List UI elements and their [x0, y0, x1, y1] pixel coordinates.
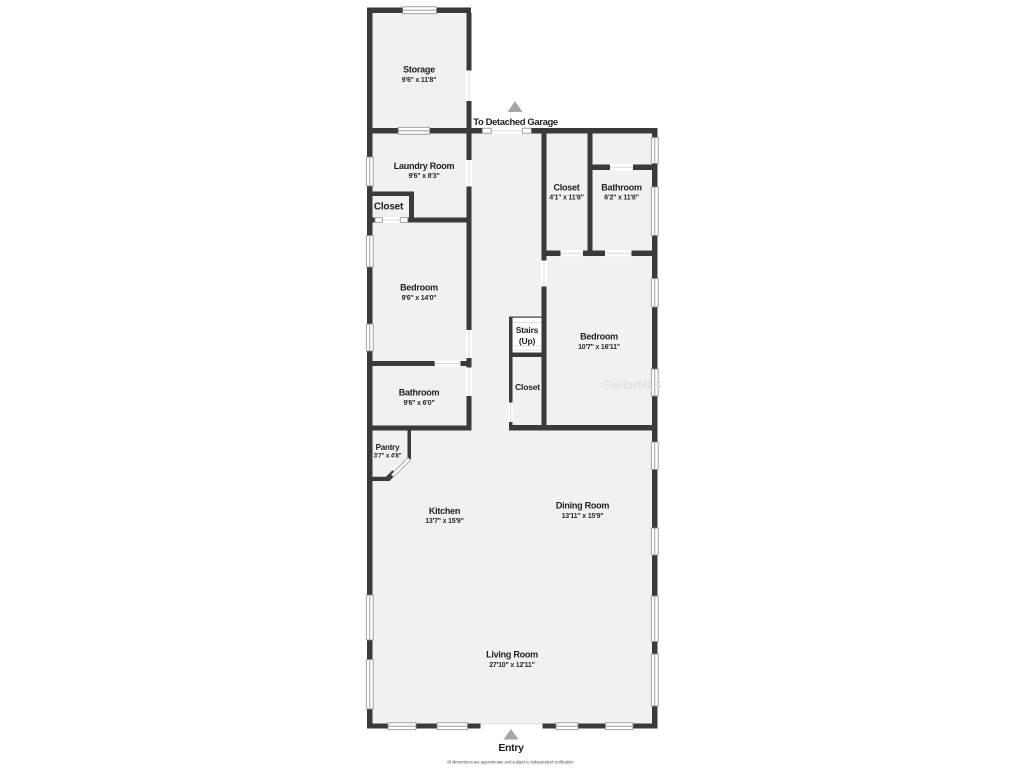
svg-text:Dining Room: Dining Room [556, 501, 609, 511]
svg-text:27'10" x 12'11": 27'10" x 12'11" [489, 662, 535, 669]
svg-text:To Detached Garage: To Detached Garage [473, 117, 558, 128]
svg-text:9'6" x 11'8": 9'6" x 11'8" [402, 77, 436, 84]
svg-text:Living Room: Living Room [486, 650, 538, 660]
svg-text:Laundry Room: Laundry Room [394, 161, 455, 171]
svg-text:Bedroom: Bedroom [580, 332, 618, 342]
svg-text:StellarMLS: StellarMLS [602, 380, 662, 392]
svg-text:13'7" x 15'9": 13'7" x 15'9" [425, 518, 464, 525]
svg-text:Closet: Closet [374, 202, 404, 213]
svg-text:Bedroom: Bedroom [400, 283, 438, 293]
svg-text:10'7" x 16'11": 10'7" x 16'11" [578, 344, 620, 351]
svg-text:Entry: Entry [498, 742, 524, 754]
svg-text:Closet: Closet [553, 183, 579, 193]
svg-text:Bathroom: Bathroom [399, 388, 440, 398]
svg-text:3'7" x 4'8": 3'7" x 4'8" [374, 453, 402, 460]
svg-text:Stairs: Stairs [516, 325, 539, 335]
svg-text:Pantry: Pantry [376, 443, 400, 452]
svg-text:6'2" x 11'8": 6'2" x 11'8" [604, 195, 638, 202]
svg-text:Bathroom: Bathroom [601, 183, 642, 193]
svg-text:9'6" x 8'3": 9'6" x 8'3" [408, 173, 439, 180]
svg-text:9'6" x 6'0": 9'6" x 6'0" [403, 400, 434, 407]
svg-text:13'11" x 15'9": 13'11" x 15'9" [562, 513, 604, 520]
svg-text:9'6" x 14'0": 9'6" x 14'0" [402, 295, 437, 302]
svg-text:Kitchen: Kitchen [429, 506, 460, 516]
svg-text:4'1" x 11'8": 4'1" x 11'8" [549, 195, 583, 202]
svg-text:All dimensions are approximate: All dimensions are approximate and subje… [447, 760, 575, 765]
svg-text:Storage: Storage [403, 65, 435, 75]
svg-text:Closet: Closet [515, 382, 540, 392]
svg-text:(Up): (Up) [519, 336, 536, 346]
